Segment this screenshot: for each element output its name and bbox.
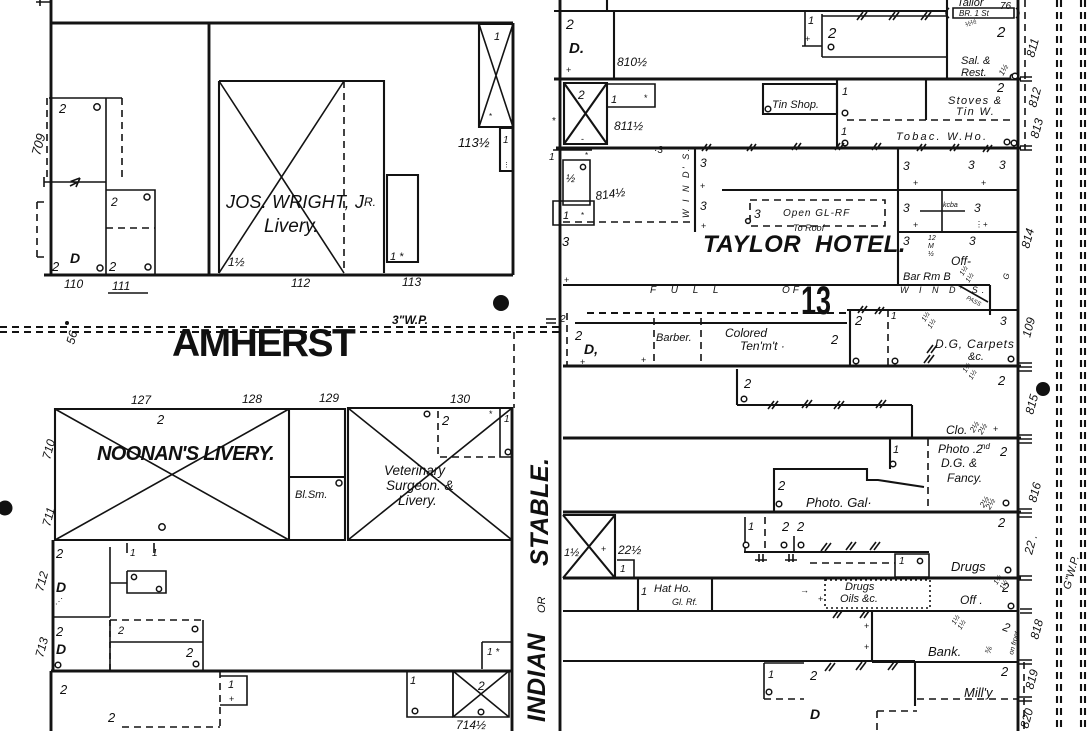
svg-text:2: 2 — [999, 444, 1008, 459]
svg-text:2: 2 — [59, 682, 68, 697]
svg-text:Livery.: Livery. — [398, 493, 437, 508]
svg-text:NOONAN'S LIVERY.: NOONAN'S LIVERY. — [97, 443, 274, 465]
svg-text:2: 2 — [827, 25, 837, 42]
svg-text:+: + — [805, 34, 810, 44]
svg-text:D.: D. — [569, 40, 584, 57]
svg-text:Barber.: Barber. — [656, 332, 692, 344]
svg-text:2: 2 — [996, 80, 1005, 95]
svg-text:M: M — [928, 243, 934, 250]
svg-text:+: + — [913, 220, 918, 230]
svg-text:Photo. Gal·: Photo. Gal· — [806, 495, 872, 510]
svg-text:⋮+: ⋮+ — [975, 220, 988, 229]
svg-text:3: 3 — [700, 199, 707, 213]
svg-text:3: 3 — [969, 234, 976, 248]
svg-text:2: 2 — [55, 624, 64, 639]
svg-text:2: 2 — [830, 332, 839, 347]
svg-text:Tin W.: Tin W. — [956, 106, 995, 118]
svg-text:13: 13 — [801, 279, 831, 323]
svg-text:1½: 1½ — [564, 547, 579, 559]
svg-text:Ten'm't ·: Ten'm't · — [740, 339, 785, 353]
svg-text:2: 2 — [51, 259, 60, 274]
svg-text:12: 12 — [928, 235, 936, 242]
svg-text:kcba: kcba — [943, 202, 958, 209]
svg-text:1: 1 — [504, 414, 510, 425]
svg-text:Fancy.: Fancy. — [947, 471, 982, 485]
svg-text:1: 1 — [494, 31, 500, 43]
svg-text:2: 2 — [854, 313, 863, 328]
svg-text:1: 1 — [152, 548, 158, 559]
svg-text:+: + — [701, 221, 706, 231]
svg-text:714½: 714½ — [456, 718, 486, 731]
svg-text:128: 128 — [242, 392, 262, 406]
svg-text:+: + — [993, 424, 998, 434]
svg-text:nd: nd — [981, 442, 990, 451]
svg-text:130: 130 — [450, 392, 470, 406]
svg-text:Mill'y: Mill'y — [964, 685, 994, 700]
svg-text:1: 1 — [620, 564, 626, 575]
svg-text:Bl.Sm.: Bl.Sm. — [295, 489, 327, 501]
svg-text:1: 1 — [808, 15, 814, 27]
svg-text:1: 1 — [563, 210, 569, 222]
svg-text:76: 76 — [1000, 1, 1012, 12]
svg-text:2: 2 — [55, 546, 64, 561]
svg-text:D,: D, — [584, 341, 598, 357]
svg-text:Surgeon. &: Surgeon. & — [386, 478, 454, 493]
svg-text:D.G. &: D.G. & — [941, 456, 977, 470]
svg-text:Sal. &: Sal. & — [961, 55, 990, 67]
svg-text:OR: OR — [536, 596, 548, 613]
svg-text:STABLE.: STABLE. — [526, 457, 554, 566]
svg-text:Photo .2: Photo .2 — [938, 442, 983, 456]
svg-text:110: 110 — [64, 277, 83, 291]
svg-text:W I N D' S.: W I N D' S. — [900, 285, 988, 295]
svg-text:2: 2 — [743, 376, 752, 391]
svg-text:·3: ·3 — [654, 145, 663, 156]
svg-text:2: 2 — [185, 645, 194, 660]
svg-text:+: + — [580, 357, 585, 367]
svg-text:811½: 811½ — [614, 119, 643, 133]
svg-text:22½: 22½ — [617, 543, 641, 557]
svg-text:2: 2 — [156, 412, 165, 427]
svg-text:111: 111 — [112, 279, 130, 293]
svg-text:1: 1 — [228, 679, 234, 691]
svg-text:D: D — [70, 250, 80, 266]
svg-text:+: + — [818, 594, 823, 604]
svg-text:+: + — [566, 65, 571, 75]
svg-text:3: 3 — [700, 156, 707, 170]
svg-text:D.G, Carpets: D.G, Carpets — [935, 337, 1015, 351]
svg-text:2: 2 — [781, 519, 790, 534]
svg-text:113: 113 — [402, 275, 421, 289]
svg-text:1: 1 — [130, 548, 136, 559]
svg-text:Veterinary: Veterinary — [384, 463, 446, 478]
svg-text:JOS. WRIGHT, J: JOS. WRIGHT, J — [225, 192, 365, 212]
svg-text:AMHERST: AMHERST — [172, 322, 356, 365]
svg-text:3"W.P.: 3"W.P. — [392, 313, 428, 327]
svg-text:1: 1 — [842, 86, 848, 98]
svg-text:1: 1 — [891, 311, 897, 322]
svg-text:½: ½ — [566, 173, 575, 185]
svg-text:2: 2 — [117, 625, 124, 637]
svg-text:+: + — [229, 694, 234, 704]
svg-text:Gl. Rf.: Gl. Rf. — [672, 597, 698, 607]
svg-text:D: D — [56, 641, 66, 657]
svg-text:2: 2 — [108, 259, 117, 274]
svg-text:-: - — [581, 134, 584, 144]
svg-text:BR. 1 St: BR. 1 St — [959, 9, 990, 18]
svg-text:1 *: 1 * — [487, 647, 500, 658]
svg-text:2: 2 — [577, 88, 585, 102]
svg-text:INDIAN: INDIAN — [523, 632, 551, 722]
svg-text:*: * — [585, 151, 588, 160]
svg-text:⋰: ⋰ — [55, 597, 63, 606]
svg-text:&c.: &c. — [968, 351, 984, 363]
svg-text:OF: OF — [782, 285, 802, 296]
svg-text:+: + — [981, 178, 986, 188]
svg-text:Colored: Colored — [725, 326, 767, 340]
svg-text:3: 3 — [562, 234, 570, 249]
svg-text:1: 1 — [768, 669, 774, 681]
svg-text:3: 3 — [754, 207, 761, 221]
svg-text:Oils &c.: Oils &c. — [840, 593, 878, 605]
svg-text:1½: 1½ — [228, 255, 245, 269]
svg-text:2: 2 — [1000, 664, 1009, 679]
svg-text:+: + — [564, 275, 569, 285]
svg-text:2: 2 — [997, 373, 1006, 388]
svg-text:112: 112 — [291, 276, 310, 290]
svg-text:HOTEL.: HOTEL. — [815, 231, 906, 258]
svg-text:*: * — [489, 112, 492, 121]
svg-text:1: 1 — [893, 444, 899, 456]
svg-text:3: 3 — [974, 201, 981, 215]
svg-text:3: 3 — [903, 201, 910, 215]
svg-text:2: 2 — [574, 328, 583, 343]
svg-text:D: D — [56, 579, 66, 595]
svg-text:Drugs: Drugs — [951, 559, 986, 574]
svg-text:2: 2 — [809, 668, 818, 683]
svg-text:Rest.: Rest. — [961, 67, 987, 79]
svg-text:Livery.: Livery. — [264, 216, 319, 237]
svg-text:R.: R. — [364, 195, 376, 209]
svg-text:113½: 113½ — [458, 135, 490, 150]
svg-text:3: 3 — [968, 158, 975, 172]
svg-text:*: * — [552, 116, 556, 127]
svg-text:129: 129 — [319, 391, 339, 405]
svg-text:⋮: ⋮ — [503, 162, 510, 169]
svg-text:1 *: 1 * — [390, 251, 404, 263]
svg-text:2: 2 — [796, 519, 805, 534]
svg-text:1: 1 — [841, 126, 847, 138]
svg-text:1: 1 — [410, 675, 416, 687]
svg-text:1: 1 — [748, 521, 754, 533]
svg-text:2: 2 — [565, 16, 574, 32]
svg-text:+: + — [913, 178, 918, 188]
svg-text:+: + — [601, 544, 606, 554]
svg-text:810½: 810½ — [617, 55, 647, 69]
svg-text:Tobac. W.Ho.: Tobac. W.Ho. — [896, 131, 988, 143]
svg-text:+: + — [864, 621, 869, 631]
svg-text:→: → — [800, 585, 809, 595]
svg-text:1: 1 — [611, 94, 617, 106]
svg-text:+: + — [641, 355, 646, 365]
svg-text:W I N D' S.: W I N D' S. — [681, 146, 691, 218]
svg-text:Open GL-RF: Open GL-RF — [783, 208, 850, 219]
svg-text:2: 2 — [110, 195, 118, 209]
svg-text:2: 2 — [58, 101, 67, 116]
svg-text:D: D — [810, 706, 820, 722]
svg-text:1: 1 — [549, 152, 555, 163]
svg-text:2: 2 — [559, 314, 566, 325]
svg-text:Off-: Off- — [951, 254, 971, 268]
svg-text:2: 2 — [441, 413, 450, 428]
svg-text:*: * — [644, 93, 648, 103]
svg-text:3: 3 — [903, 234, 910, 248]
svg-text:*: * — [581, 211, 584, 220]
svg-text:Tin Shop.: Tin Shop. — [772, 99, 819, 111]
svg-text:3: 3 — [1000, 314, 1007, 328]
svg-text:1: 1 — [899, 556, 905, 567]
svg-text:1: 1 — [641, 586, 647, 598]
svg-text:Bank.: Bank. — [928, 644, 961, 659]
svg-text:Hat Ho.: Hat Ho. — [654, 583, 691, 595]
svg-text:Clo.: Clo. — [946, 423, 967, 437]
svg-text:127: 127 — [131, 393, 152, 407]
svg-text:2: 2 — [996, 24, 1006, 41]
svg-text:3: 3 — [999, 158, 1006, 172]
svg-text:Off .: Off . — [960, 593, 983, 607]
svg-text:+: + — [864, 642, 869, 652]
svg-text:1: 1 — [503, 135, 509, 146]
svg-text:3: 3 — [903, 159, 910, 173]
svg-text:2: 2 — [997, 515, 1006, 530]
svg-text:2: 2 — [107, 710, 116, 725]
svg-text:+: + — [700, 181, 705, 191]
svg-text:*: * — [489, 409, 493, 419]
svg-text:Bar Rm B: Bar Rm B — [903, 271, 951, 283]
svg-text:2: 2 — [477, 679, 485, 693]
svg-text:Drugs: Drugs — [845, 581, 875, 593]
svg-text:F U L L: F U L L — [650, 285, 724, 296]
svg-text:2: 2 — [777, 478, 786, 493]
svg-text:½: ½ — [928, 250, 934, 258]
svg-text:TAYLOR: TAYLOR — [703, 231, 801, 258]
